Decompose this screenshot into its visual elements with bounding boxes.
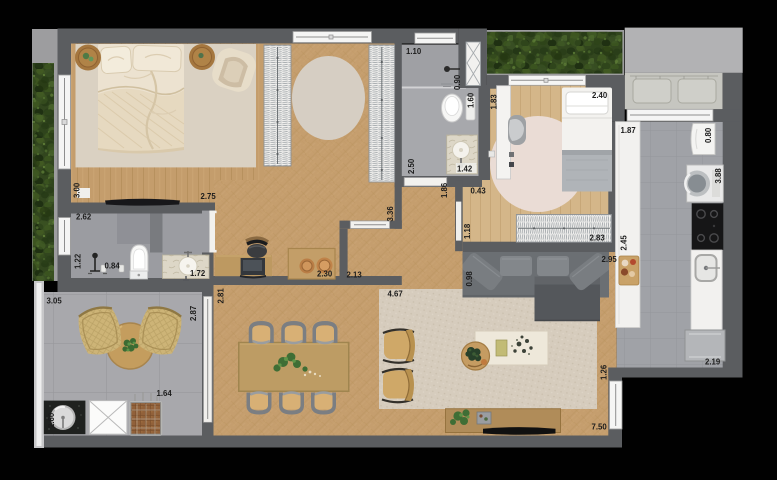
svg-text:1.64: 1.64: [157, 389, 173, 398]
svg-text:2.83: 2.83: [590, 234, 606, 243]
svg-text:0.84: 0.84: [105, 262, 121, 271]
svg-text:1.60: 1.60: [467, 92, 476, 108]
svg-text:3.00: 3.00: [73, 182, 82, 198]
svg-text:1.72: 1.72: [190, 269, 206, 278]
svg-text:1.87: 1.87: [621, 126, 636, 135]
svg-text:2.60: 2.60: [47, 412, 56, 428]
svg-text:1.83: 1.83: [490, 94, 499, 110]
svg-text:1.18: 1.18: [463, 223, 472, 239]
svg-text:3.05: 3.05: [47, 297, 63, 306]
svg-text:1.22: 1.22: [74, 253, 83, 269]
svg-text:2.75: 2.75: [201, 192, 217, 201]
svg-text:4.67: 4.67: [388, 290, 403, 299]
svg-text:2.45: 2.45: [620, 235, 629, 251]
svg-text:2.50: 2.50: [407, 158, 416, 174]
svg-text:2.95: 2.95: [602, 255, 618, 264]
svg-text:0.98: 0.98: [465, 271, 474, 287]
svg-text:2.62: 2.62: [76, 213, 92, 222]
svg-text:1.86: 1.86: [440, 182, 449, 198]
svg-text:7.50: 7.50: [592, 423, 608, 432]
svg-text:1.26: 1.26: [600, 364, 609, 380]
svg-text:2.40: 2.40: [592, 91, 608, 100]
svg-text:2.19: 2.19: [705, 358, 721, 367]
svg-text:2.87: 2.87: [189, 306, 198, 321]
svg-text:2.13: 2.13: [347, 271, 363, 280]
svg-text:2.81: 2.81: [217, 288, 226, 304]
svg-text:2.30: 2.30: [317, 270, 333, 279]
svg-text:0.43: 0.43: [471, 187, 487, 196]
svg-text:3.36: 3.36: [386, 206, 395, 222]
svg-text:0.80: 0.80: [704, 127, 713, 143]
svg-text:0.90: 0.90: [453, 74, 462, 90]
svg-text:1.10: 1.10: [406, 47, 422, 56]
svg-text:3.88: 3.88: [714, 168, 723, 184]
svg-text:1.42: 1.42: [457, 165, 473, 174]
